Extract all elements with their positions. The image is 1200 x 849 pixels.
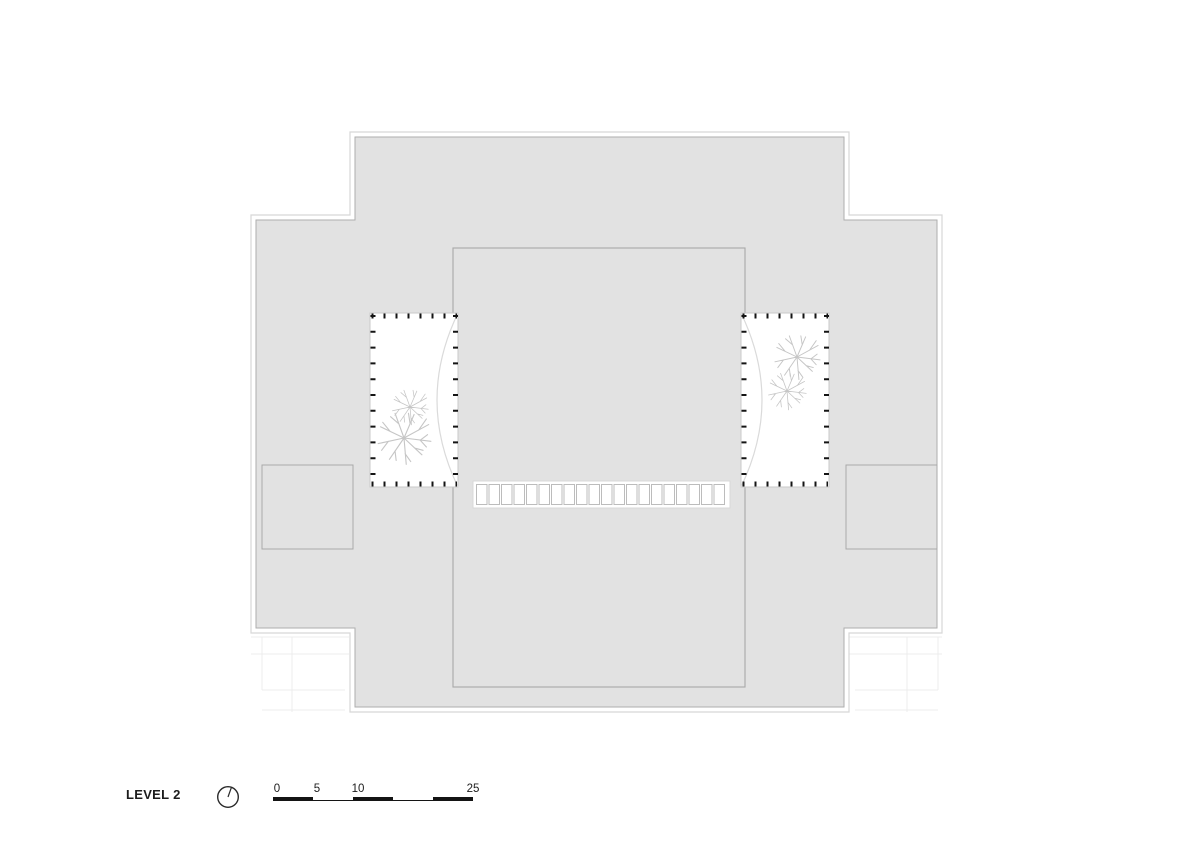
level-label: LEVEL 2 xyxy=(126,787,181,802)
scale-bar-segment xyxy=(433,797,473,801)
scale-bar-segment xyxy=(353,797,393,801)
north-indicator-icon xyxy=(215,784,241,810)
legend: LEVEL 2 0 5 10 25 xyxy=(0,0,1200,849)
scale-bar-segment xyxy=(273,797,313,801)
scale-label-0: 0 xyxy=(274,783,280,795)
scale-label-5: 5 xyxy=(314,783,320,795)
scale-label-25: 25 xyxy=(467,783,480,795)
scale-label-10: 10 xyxy=(352,783,365,795)
floor-plan-page: LEVEL 2 0 5 10 25 xyxy=(0,0,1200,849)
scale-bar: 0 5 10 25 xyxy=(273,783,473,805)
